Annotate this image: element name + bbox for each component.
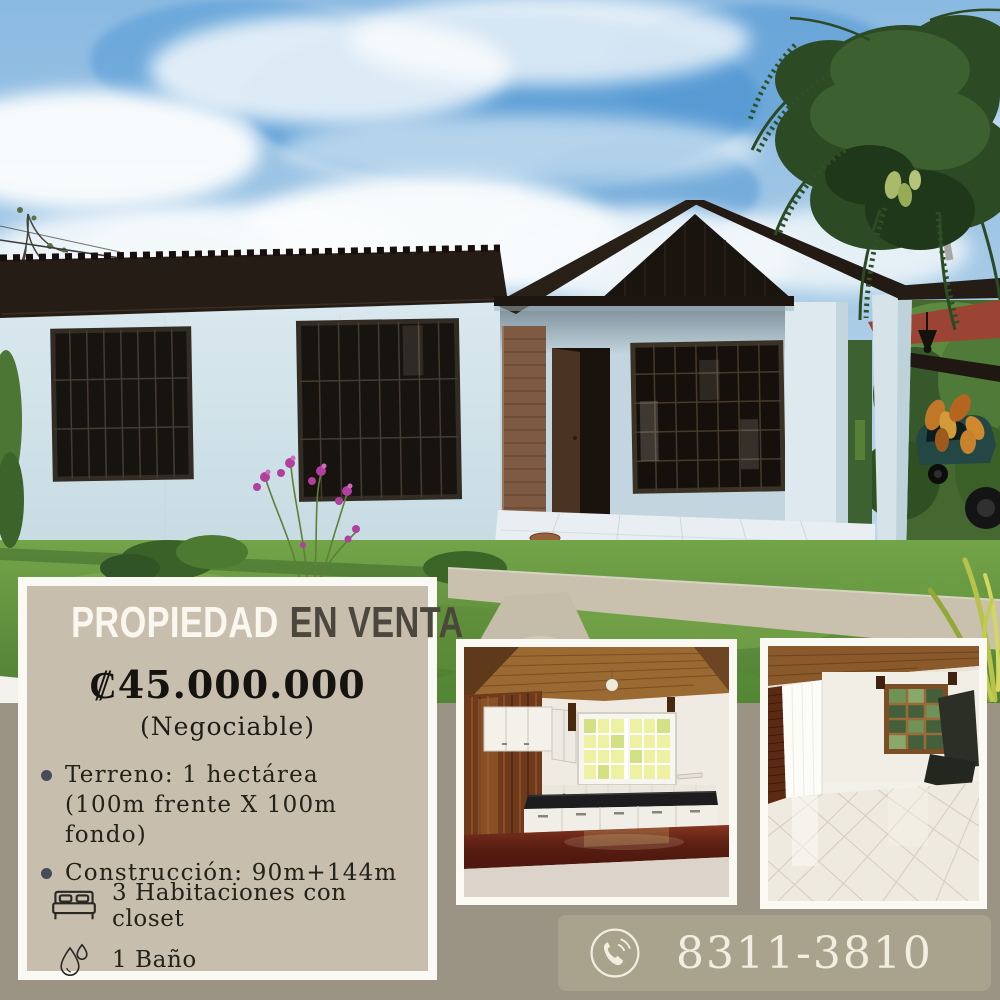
- info-card: PROPIEDADEN VENTA ₡45.000.000 (Negociabl…: [18, 577, 437, 980]
- living-room-photo-art: [768, 646, 979, 901]
- brick-pillar: [502, 326, 546, 542]
- feature-bathroom-label: 1 Baño: [112, 947, 197, 973]
- page-title: PROPIEDADEN VENTA: [71, 598, 384, 648]
- kitchen-photo-art: [464, 647, 729, 897]
- phone-bar: 8311-3810: [558, 915, 991, 991]
- feature-list: 3 Habitaciones con closet 1 Baño: [51, 880, 420, 988]
- front-door: [552, 348, 610, 518]
- feature-bedrooms: 3 Habitaciones con closet: [51, 880, 420, 932]
- detail-list: Terreno: 1 hectárea (100m frente X 100m …: [41, 760, 420, 896]
- barred-window-left: [53, 329, 192, 479]
- title-propiedad: PROPIEDAD: [71, 598, 279, 647]
- gap-light: [855, 420, 865, 460]
- list-item: Terreno: 1 hectárea (100m frente X 100m …: [41, 760, 420, 850]
- feature-bathroom: 1 Baño: [51, 941, 420, 979]
- real-estate-flyer: PROPIEDADEN VENTA ₡45.000.000 (Negociabl…: [0, 0, 1000, 1000]
- pavement-corner: [0, 676, 20, 706]
- living-room-photo: [760, 638, 987, 909]
- kitchen-photo: [456, 639, 737, 905]
- feature-bedrooms-label: 3 Habitaciones con closet: [112, 880, 420, 932]
- price: ₡45.000.000: [27, 662, 428, 708]
- bed-icon: [51, 888, 97, 924]
- phone-number: 8311-3810: [676, 928, 933, 979]
- detail-terreno: Terreno: 1 hectárea (100m frente X 100m …: [65, 760, 420, 850]
- phone-icon: [588, 926, 642, 980]
- price-note: (Negociable): [27, 712, 428, 741]
- tire-hub: [977, 499, 995, 517]
- detail-terreno-line1: Terreno: 1 hectárea: [65, 760, 420, 790]
- bullet-dot-icon: [41, 770, 52, 781]
- water-drop-icon: [51, 941, 97, 979]
- title-en-venta: EN VENTA: [290, 598, 464, 647]
- bullet-dot-icon: [41, 868, 52, 879]
- porch-window: [633, 343, 784, 492]
- detail-terreno-line2: (100m frente X 100m fondo): [65, 790, 420, 850]
